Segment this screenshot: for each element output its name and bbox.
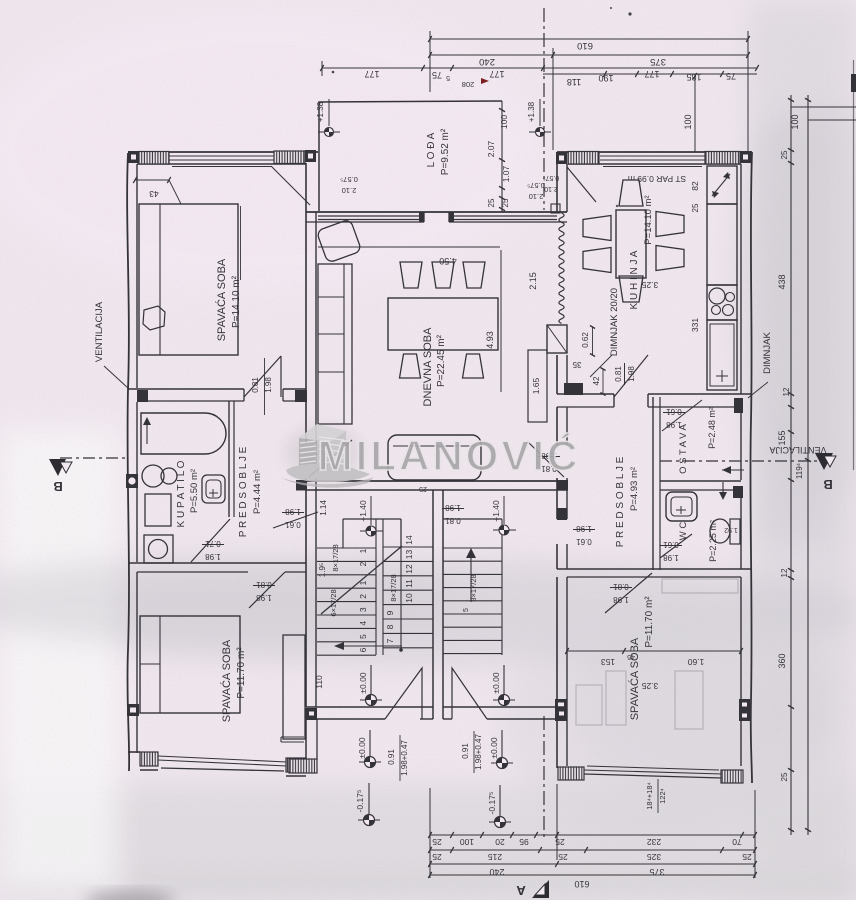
svg-text:+1.40: +1.40 [358,500,368,522]
svg-text:2: 2 [358,561,368,566]
svg-text:18⁴+18⁴: 18⁴+18⁴ [645,782,654,810]
svg-text:7: 7 [385,638,395,643]
svg-text:0.57⁵: 0.57⁵ [527,181,545,190]
svg-text:5: 5 [463,608,470,612]
svg-text:1.98: 1.98 [264,377,273,393]
svg-text:100: 100 [499,115,509,129]
svg-text:P=11.70 m²: P=11.70 m² [644,596,655,648]
svg-text:0.91: 0.91 [387,749,396,765]
svg-text:12: 12 [780,568,789,577]
svg-text:75: 75 [726,71,736,81]
svg-text:6×17/28: 6×17/28 [329,589,338,616]
svg-text:20: 20 [495,837,505,847]
svg-text:DNEVNA SOBA: DNEVNA SOBA [422,327,434,407]
svg-text:L O Đ A: L O Đ A [426,132,437,167]
svg-text:1.60: 1.60 [687,657,704,667]
svg-text:1.98: 1.98 [256,593,272,602]
svg-text:8: 8 [385,624,395,629]
svg-text:1.65: 1.65 [531,377,541,394]
svg-text:±0.00: ±0.00 [491,672,501,693]
svg-text:8×17/28: 8×17/28 [389,574,398,601]
svg-text:0.81: 0.81 [256,580,272,589]
svg-text:9: 9 [385,610,395,615]
svg-text:331: 331 [690,318,700,332]
svg-text:119⁴: 119⁴ [795,462,804,479]
svg-text:0.81: 0.81 [614,366,623,382]
svg-text:K U P A T I L O: K U P A T I L O [176,460,187,527]
svg-text:P=5.50 m²: P=5.50 m² [189,469,200,513]
svg-text:P=9.52 m²: P=9.52 m² [440,128,451,175]
svg-text:1.98: 1.98 [627,366,636,382]
svg-text:3.25: 3.25 [641,280,658,290]
svg-text:±0.00: ±0.00 [358,672,368,693]
svg-text:2.10: 2.10 [544,185,558,192]
svg-text:B: B [823,477,832,492]
svg-text:0.81: 0.81 [445,516,461,525]
svg-text:±0.00: ±0.00 [489,737,499,758]
svg-text:75: 75 [432,70,442,80]
svg-text:25: 25 [742,852,752,862]
svg-text:-0.17⁵: -0.17⁵ [487,792,497,815]
svg-text:0.57⁵: 0.57⁵ [543,174,560,181]
svg-text:438: 438 [777,274,787,289]
svg-text:2: 2 [358,594,368,599]
svg-text:2.15: 2.15 [528,272,538,290]
svg-text:P=2.25 m²: P=2.25 m² [708,520,718,562]
svg-text:100: 100 [460,837,474,847]
svg-text:122⁴: 122⁴ [658,788,667,804]
svg-text:240: 240 [479,56,495,67]
svg-text:1.9⁵: 1.9⁵ [318,563,327,577]
svg-text:±0.00: ±0.00 [357,737,367,758]
svg-text:3: 3 [358,607,368,612]
svg-text:25: 25 [432,852,442,862]
svg-text:25: 25 [432,837,442,847]
svg-text:VENTILACIJA: VENTILACIJA [94,301,105,362]
svg-text:1.98: 1.98 [666,420,682,429]
svg-text:43: 43 [149,189,159,199]
svg-text:1.07: 1.07 [501,165,511,182]
svg-text:13: 13 [404,550,414,560]
svg-text:0.61: 0.61 [663,540,679,549]
svg-text:5: 5 [358,634,368,639]
svg-text:118: 118 [567,77,581,87]
svg-text:177: 177 [489,69,504,79]
svg-text:110: 110 [314,675,324,689]
svg-text:VENTILACIJA: VENTILACIJA [769,445,826,455]
svg-text:375: 375 [650,56,666,67]
svg-text:P=14.10 m²: P=14.10 m² [643,195,654,244]
svg-text:2.07: 2.07 [486,140,496,157]
svg-text:12: 12 [404,564,414,574]
svg-text:1.98: 1.98 [663,553,679,562]
svg-text:A: A [516,883,526,898]
svg-text:155: 155 [777,430,787,445]
svg-text:25: 25 [780,772,789,781]
svg-text:325: 325 [647,852,661,862]
svg-text:0.71: 0.71 [205,539,221,548]
svg-text:1.98: 1.98 [205,552,221,561]
svg-text:1.98: 1.98 [285,507,301,516]
svg-text:10: 10 [404,593,414,603]
svg-text:190: 190 [598,73,613,83]
svg-text:82: 82 [690,181,700,191]
svg-text:MILANOVIĆ: MILANOVIĆ [318,431,581,479]
svg-text:25: 25 [555,837,565,847]
svg-text:25: 25 [558,852,568,862]
svg-text:P=4.93 m²: P=4.93 m² [629,467,640,511]
svg-text:DIMNJAK: DIMNJAK [762,331,773,373]
svg-text:1.98+0.47: 1.98+0.47 [474,734,483,770]
svg-text:P R E D S O B L J E: P R E D S O B L J E [238,446,249,537]
svg-text:232: 232 [647,837,661,847]
svg-text:0.91: 0.91 [461,743,470,759]
svg-text:SPAVAĆA SOBA: SPAVAĆA SOBA [628,637,641,720]
svg-text:8×17/28: 8×17/28 [469,574,478,601]
svg-text:0.57⁵: 0.57⁵ [340,175,358,184]
svg-text:2.10: 2.10 [529,192,544,201]
svg-text:+1.38: +1.38 [316,101,325,122]
svg-text:P=22.45 m²: P=22.45 m² [436,334,447,387]
svg-text:1: 1 [358,580,368,585]
svg-text:42: 42 [592,376,601,385]
svg-text:4: 4 [358,621,368,626]
svg-text:70: 70 [732,837,742,847]
svg-text:1.98: 1.98 [576,524,592,533]
svg-text:P=11.70 m²: P=11.70 m² [236,647,247,699]
svg-text:25: 25 [780,150,789,159]
svg-text:0.62: 0.62 [581,332,590,348]
svg-text:0.81: 0.81 [613,582,629,591]
svg-text:5: 5 [446,74,450,81]
svg-text:-0.17⁵: -0.17⁵ [355,790,365,813]
svg-text:208: 208 [462,80,475,89]
svg-text:1.92: 1.92 [724,526,738,533]
svg-text:25: 25 [691,203,700,212]
svg-text:11: 11 [404,579,414,588]
svg-text:B: B [53,479,62,494]
svg-text:DIMNJAK 20/20: DIMNJAK 20/20 [609,288,620,356]
svg-text:SPAVAĆA SOBA: SPAVAĆA SOBA [215,258,228,341]
svg-text:0.61: 0.61 [285,520,301,529]
svg-text:ST PAR 0.99 m: ST PAR 0.99 m [628,174,686,184]
svg-text:3.25: 3.25 [641,681,658,691]
svg-text:215: 215 [488,852,502,862]
svg-text:O S T A V A: O S T A V A [678,423,689,473]
svg-text:177: 177 [644,69,659,79]
svg-text:+1.40: +1.40 [491,500,501,522]
svg-text:1.98: 1.98 [445,503,461,512]
svg-text:25: 25 [419,485,427,492]
svg-text:SPAVAĆA SOBA: SPAVAĆA SOBA [220,639,233,722]
svg-text:610: 610 [574,879,589,889]
svg-text:0.81: 0.81 [251,377,260,393]
svg-text:P=14.10 m²: P=14.10 m² [231,275,242,328]
svg-text:4.93: 4.93 [485,331,495,349]
svg-text:1.98+0.47: 1.98+0.47 [400,740,409,776]
svg-text:0.61: 0.61 [666,407,682,416]
svg-text:153: 153 [601,657,615,667]
svg-text:177: 177 [364,69,379,79]
svg-text:8×17/28: 8×17/28 [331,544,340,571]
svg-text:1: 1 [358,548,368,553]
svg-text:14: 14 [404,535,414,545]
svg-text:25: 25 [501,198,510,207]
svg-text:+1.38: +1.38 [527,101,536,122]
svg-text:35: 35 [572,360,581,369]
svg-text:25: 25 [487,198,496,207]
svg-text:95: 95 [519,837,529,847]
svg-text:610: 610 [577,40,593,51]
svg-text:6: 6 [358,647,368,652]
svg-text:2.10: 2.10 [342,186,357,195]
svg-text:1.98: 1.98 [613,595,629,604]
svg-text:P=2.48 m²: P=2.48 m² [707,407,717,449]
svg-text:100: 100 [683,114,693,129]
svg-text:360: 360 [777,653,787,668]
svg-text:K U H I N J A: K U H I N J A [629,250,640,309]
svg-text:0.61: 0.61 [576,537,592,546]
svg-text:P R E D S O B L J E: P R E D S O B L J E [615,456,626,547]
svg-text:12: 12 [782,387,791,396]
svg-text:1.14: 1.14 [319,500,328,516]
svg-text:P=4.44 m²: P=4.44 m² [252,470,263,514]
svg-text:45: 45 [627,653,635,660]
